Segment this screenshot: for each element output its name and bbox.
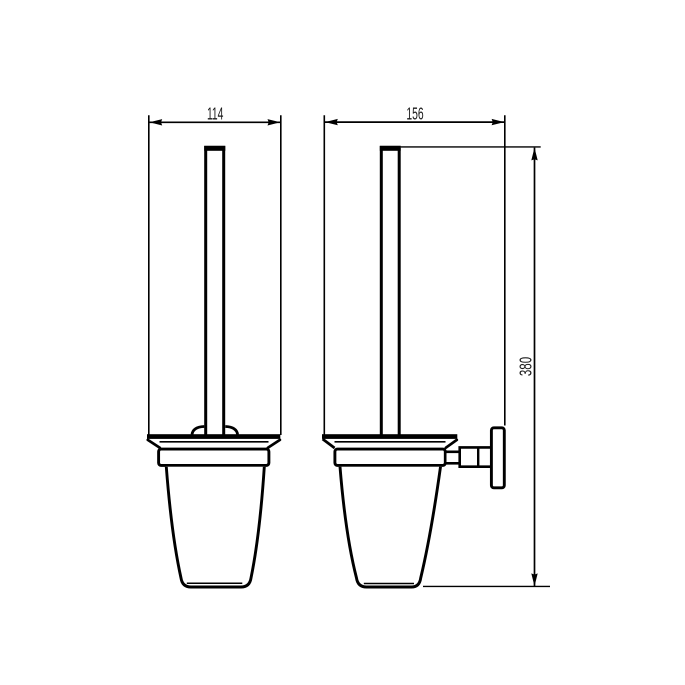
svg-text:380: 380 — [516, 357, 536, 376]
svg-text:114: 114 — [207, 103, 224, 123]
svg-text:156: 156 — [406, 103, 423, 123]
